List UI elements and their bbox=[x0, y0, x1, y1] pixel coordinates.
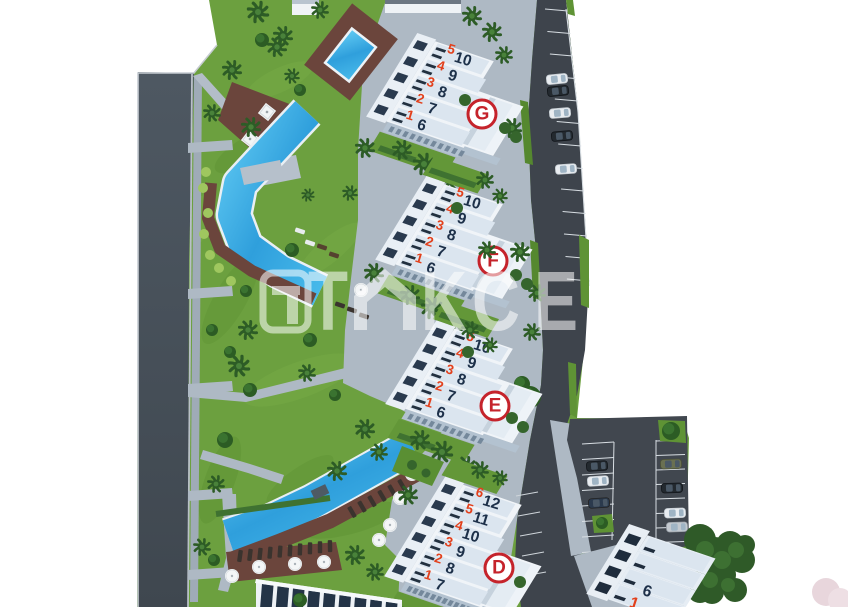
svg-text:E: E bbox=[534, 254, 578, 348]
svg-text:K: K bbox=[421, 254, 467, 348]
svg-text:C: C bbox=[472, 254, 520, 348]
svg-text:E: E bbox=[489, 396, 502, 417]
svg-text:D: D bbox=[492, 558, 506, 579]
svg-text:T: T bbox=[308, 254, 348, 348]
svg-text:G: G bbox=[475, 104, 490, 125]
